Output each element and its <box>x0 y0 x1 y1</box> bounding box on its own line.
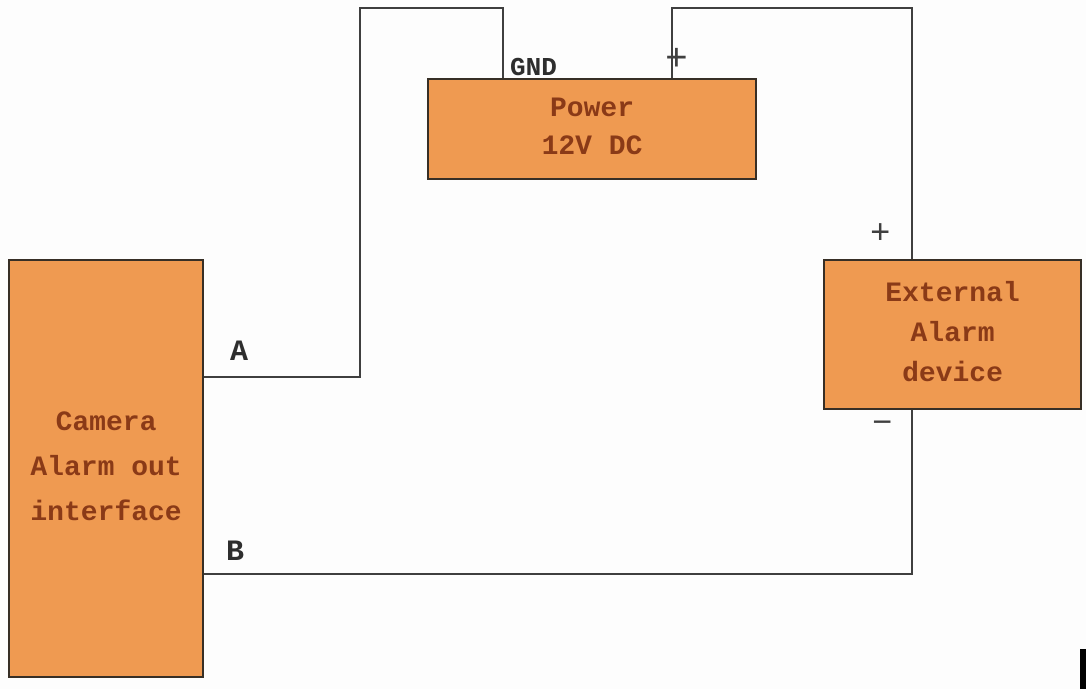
box-label-line: interface <box>30 491 181 536</box>
power-plus-terminal-label: + <box>665 42 688 80</box>
box-label-line: Alarm out <box>30 446 181 491</box>
box-label-line: Camera <box>56 401 157 446</box>
wire-b-to-external-minus <box>204 410 912 574</box>
external-plus-terminal-label: + <box>870 218 890 252</box>
power-12v-dc-box: Power 12V DC <box>427 78 757 180</box>
terminal-label-b: B <box>226 538 244 568</box>
box-label-line: device <box>902 355 1003 395</box>
box-label-line: Power <box>550 91 634 129</box>
scan-artifact-bar <box>1080 649 1086 689</box>
external-minus-terminal-label: − <box>872 408 892 442</box>
box-label-line: Alarm <box>910 315 994 355</box>
camera-alarm-out-interface-box: Camera Alarm out interface <box>8 259 204 678</box>
terminal-label-gnd: GND <box>510 55 557 81</box>
wiring-diagram-canvas: Camera Alarm out interface Power 12V DC … <box>0 0 1086 689</box>
terminal-label-a: A <box>230 338 248 368</box>
wire-a-to-gnd <box>204 8 503 377</box>
external-alarm-device-box: External Alarm device <box>823 259 1082 410</box>
box-label-line: External <box>885 275 1019 315</box>
box-label-line: 12V DC <box>542 129 643 167</box>
